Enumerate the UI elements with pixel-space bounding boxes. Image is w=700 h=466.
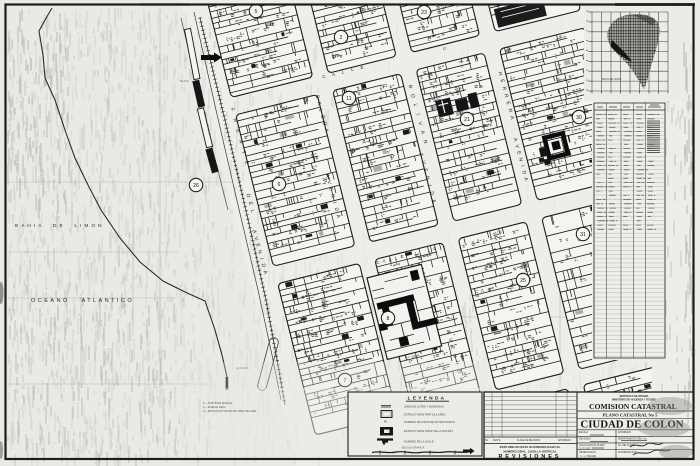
svg-text:26: 26: [193, 183, 199, 189]
svg-text:31: 31: [580, 232, 586, 238]
svg-text:L: L: [389, 257, 392, 262]
svg-text:CLASE DE REVISION: CLASE DE REVISION: [517, 439, 540, 442]
svg-text:1— SURTIDOR MUELLE.: 1— SURTIDOR MUELLE.: [203, 401, 233, 405]
svg-text:21: 21: [464, 117, 470, 123]
svg-text:C°: C°: [500, 230, 505, 234]
svg-text:OCEANO ATLANTICO: OCEANO ATLANTICO: [31, 298, 134, 304]
svg-text:P/: P/: [384, 420, 387, 424]
svg-text:APROBADO POR: APROBADO POR: [618, 451, 637, 454]
svg-text:CALCULADO EL PLANO: CALCULADO EL PLANO: [579, 444, 605, 447]
svg-text:BAHIA DE LIMON: BAHIA DE LIMON: [602, 78, 622, 81]
svg-text:6: 6: [278, 182, 281, 188]
svg-text:L: L: [351, 67, 354, 72]
svg-text:PLAYA: PLAYA: [180, 79, 189, 83]
svg-text:5: 5: [255, 9, 258, 15]
svg-text:ESTRUCTURAS PARTICULARES.: ESTRUCTURAS PARTICULARES.: [404, 413, 446, 417]
svg-text:LEYENDA: LEYENDA: [408, 396, 447, 401]
svg-text:NUMERO GRAL. CASILLA VERTIC: NUMERO GRAL. CASILLA VERTICAL: [503, 450, 556, 454]
svg-text:OBSERVACION: OBSERVACION: [579, 451, 596, 454]
svg-text:APROBADO: APROBADO: [558, 439, 571, 442]
svg-text:NUMERO DE PISOS DE ESTRUCT: NUMERO DE PISOS DE ESTRUCTURAS.: [404, 420, 456, 424]
svg-text:8: 8: [387, 316, 390, 322]
svg-text:PLANO CATASTRAL No 5: PLANO CATASTRAL No 5: [603, 413, 659, 418]
svg-text:11: 11: [346, 96, 351, 102]
svg-text:DEPARTAMENTO REG. No.: DEPARTAMENTO REG. No.: [618, 438, 648, 441]
svg-text:FECHA: FECHA: [493, 439, 501, 442]
svg-text:E: E: [360, 65, 363, 70]
svg-text:3— ESTACION PTDORA DE TREN: 3— ESTACION PTDORA DE TREN DEL MAR.: [203, 409, 257, 413]
svg-text:E: E: [400, 254, 403, 259]
svg-text:D°: D°: [443, 47, 448, 51]
svg-text:19 70 1957: 19 70 1957: [579, 449, 591, 451]
svg-text:LINEA DE LOTES Y MANZANAS.: LINEA DE LOTES Y MANZANAS.: [404, 405, 445, 409]
svg-text:30: 30: [576, 115, 582, 121]
svg-text:ESTE DIBUJO ESTA GUARDADO: ESTE DIBUJO ESTA GUARDADO BAJO EL: [500, 445, 561, 449]
svg-text:REVISADO: REVISADO: [579, 438, 591, 441]
svg-text:BAHIA DE LIMON: BAHIA DE LIMON: [15, 223, 105, 229]
svg-text:ESCALA: ESCALA: [579, 431, 589, 434]
svg-text:25: 25: [520, 278, 526, 284]
svg-text:L: L: [395, 256, 398, 261]
svg-text:2: 2: [340, 35, 343, 41]
svg-text:NUMERO DE LA CALLE.: NUMERO DE LA CALLE.: [404, 440, 435, 444]
svg-text:2— MUELLE REAL.: 2— MUELLE REAL.: [203, 405, 227, 409]
svg-text:L: L: [342, 70, 345, 75]
svg-text:ESCALA GRAFICA: ESCALA GRAFICA: [402, 446, 425, 450]
svg-text:3 - 1 - PANAMA: 3 - 1 - PANAMA: [580, 455, 597, 458]
svg-text:23: 23: [421, 10, 427, 16]
svg-text:APROBADO: APROBADO: [618, 431, 631, 434]
svg-text:No.: No.: [485, 440, 489, 442]
svg-text:ESTRUCTURAS PROP. DE LA NA: ESTRUCTURAS PROP. DE LA NACION.: [404, 429, 453, 433]
